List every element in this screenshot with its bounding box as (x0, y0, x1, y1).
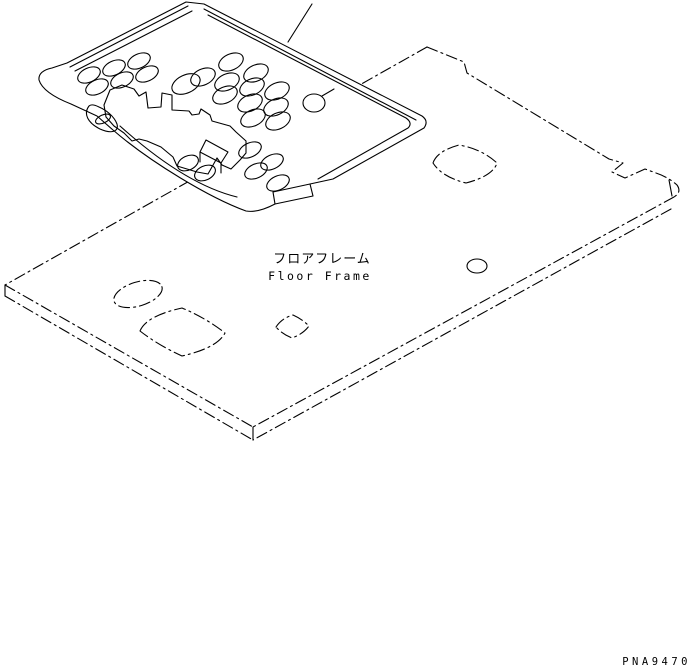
parts-diagram-drawing: フロアフレーム Floor Frame PNA9470 (0, 0, 692, 667)
leader-line (288, 4, 312, 42)
part-name-japanese: フロアフレーム (273, 252, 371, 267)
drawing-number: PNA9470 (622, 656, 691, 667)
frame-hole-small-diamond (276, 315, 309, 338)
mat-outer-outline (39, 2, 426, 211)
floor-mat-drawing (39, 2, 426, 211)
parts-diagram-page: フロアフレーム Floor Frame PNA9470 (0, 0, 692, 667)
frame-hole-rounded-square-top (433, 145, 497, 183)
frame-hole-circle (467, 259, 487, 273)
frame-hole-oval-left (111, 275, 166, 313)
part-name-english: Floor Frame (268, 269, 372, 283)
frame-hole-rounded-square-left (140, 308, 225, 356)
